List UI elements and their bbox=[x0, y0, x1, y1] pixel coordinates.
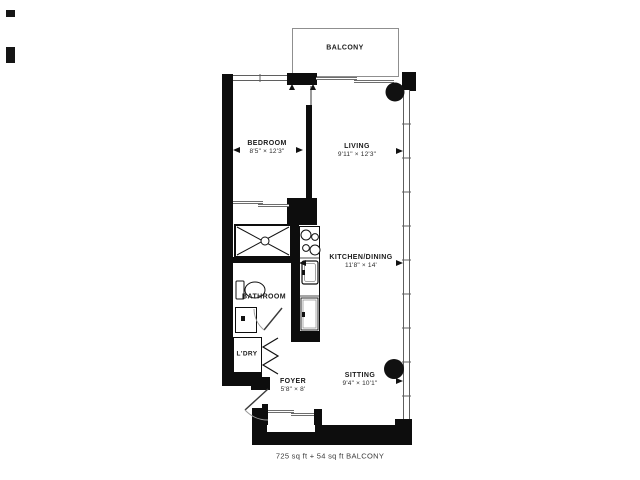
shower-box bbox=[234, 224, 292, 258]
room-label-bedroom: BEDROOM 8'5" × 12'3" bbox=[247, 139, 286, 157]
structural-column bbox=[384, 83, 405, 380]
wall-bedroom-corner-block bbox=[287, 198, 317, 225]
wall-laundry-bottom bbox=[222, 372, 262, 386]
balcony-slider-panel bbox=[354, 80, 394, 83]
wall-bedroom-living bbox=[306, 105, 312, 200]
wall-post-topright bbox=[402, 72, 416, 91]
room-label-laundry: L'DRY bbox=[237, 351, 258, 360]
scan-artifact bbox=[6, 10, 15, 17]
wall-top-mid bbox=[287, 73, 317, 85]
vanity-box bbox=[235, 307, 257, 333]
room-label-kitchen-dining: KITCHEN/DINING 11'8" × 14' bbox=[329, 253, 392, 271]
wall-bath-kitchen bbox=[291, 224, 299, 342]
bathroom-door-swing bbox=[254, 308, 282, 330]
bifold-door-icon bbox=[263, 338, 278, 374]
area-note: 725 sq ft + 54 sq ft BALCONY bbox=[276, 452, 384, 461]
room-label-bathroom: BATHROOM bbox=[242, 292, 286, 301]
bedroom-slider-panel bbox=[310, 86, 312, 107]
room-dims: 11'8" × 14' bbox=[329, 262, 392, 271]
wall-stub-closet-right bbox=[314, 409, 322, 425]
bedroom-window bbox=[233, 75, 288, 81]
room-name: BATHROOM bbox=[242, 293, 286, 300]
scan-artifact bbox=[6, 47, 15, 63]
room-dims: 5'8" × 8' bbox=[280, 386, 306, 395]
room-name: BALCONY bbox=[326, 44, 363, 51]
floor-plan: BALCONY BEDROOM 8'5" × 12'3" LIVING 9'11… bbox=[0, 0, 640, 480]
bedroom-closet-slider bbox=[258, 204, 289, 207]
window-wall-right bbox=[403, 90, 410, 420]
room-label-foyer: FOYER 5'8" × 8' bbox=[280, 377, 306, 395]
room-name: BEDROOM bbox=[247, 140, 286, 147]
room-name: KITCHEN/DINING bbox=[329, 254, 392, 261]
room-label-living: LIVING 9'11" × 12'3" bbox=[338, 142, 376, 160]
room-label-balcony: BALCONY bbox=[326, 43, 363, 52]
room-name: FOYER bbox=[280, 378, 306, 385]
room-name: LIVING bbox=[344, 143, 370, 150]
room-dims: 9'11" × 12'3" bbox=[338, 151, 376, 160]
foyer-closet-slider bbox=[267, 410, 294, 413]
kitchen-counter bbox=[299, 226, 320, 332]
wall-entry-left bbox=[252, 408, 265, 445]
room-name: SITTING bbox=[345, 372, 375, 379]
room-label-sitting: SITTING 9'4" × 10'1" bbox=[343, 371, 378, 389]
balcony-slider-panel bbox=[316, 77, 357, 80]
wall-left bbox=[222, 74, 233, 386]
room-dims: 9'4" × 10'1" bbox=[343, 380, 378, 389]
room-name: L'DRY bbox=[237, 351, 258, 358]
wall-counter-end bbox=[291, 332, 320, 342]
room-dims: 8'5" × 12'3" bbox=[247, 148, 286, 157]
